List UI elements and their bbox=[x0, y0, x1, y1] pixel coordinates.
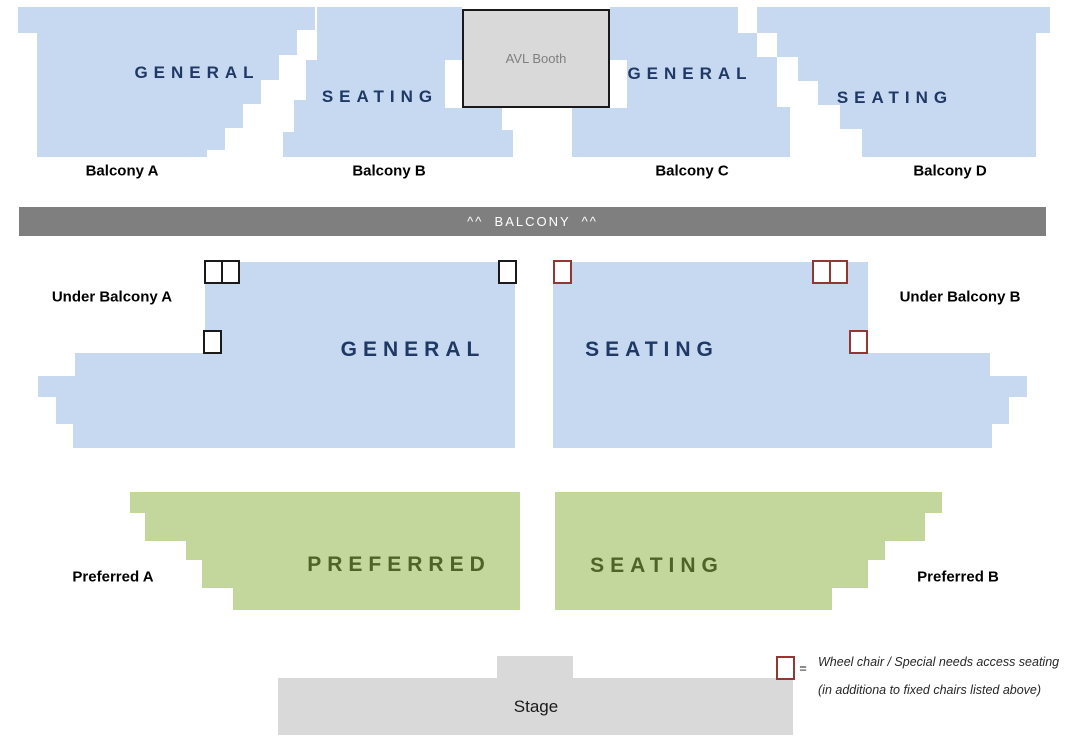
general-seating-heading-right: SEATING bbox=[585, 338, 719, 362]
preferred-a-label: Preferred A bbox=[72, 569, 153, 586]
balcony-divider-bar: ^^ BALCONY ^^ bbox=[19, 207, 1046, 236]
preferred-a-shape bbox=[130, 492, 520, 610]
legend-line-1: Wheel chair / Special needs access seati… bbox=[818, 655, 1059, 669]
balcony-c-label: Balcony C bbox=[655, 163, 728, 180]
balcony-d-label: Balcony D bbox=[913, 163, 986, 180]
under-balcony-b-label: Under Balcony B bbox=[900, 289, 1021, 306]
preferred-b-shape bbox=[555, 492, 942, 610]
wheelchair-seat-square bbox=[498, 260, 517, 284]
balcony-a-label: Balcony A bbox=[86, 163, 159, 180]
wheelchair-seat-square bbox=[553, 260, 572, 284]
preferred-b-label: Preferred B bbox=[917, 569, 999, 586]
wheelchair-seat-square bbox=[221, 260, 240, 284]
under-balcony-a-label: Under Balcony A bbox=[52, 289, 172, 306]
balcony-a-heading: GENERAL bbox=[134, 63, 259, 83]
seating-shapes-layer bbox=[0, 0, 1065, 740]
stage-shape bbox=[278, 656, 793, 735]
avl-booth: AVL Booth bbox=[462, 9, 610, 108]
seating-chart: GENERAL SEATING GENERAL SEATING AVL Boot… bbox=[0, 0, 1065, 740]
avl-booth-label: AVL Booth bbox=[506, 51, 567, 66]
wheelchair-seat-square bbox=[203, 330, 222, 354]
preferred-heading-left: PREFERRED bbox=[307, 553, 491, 577]
legend-line-2: (in additiona to fixed chairs listed abo… bbox=[818, 683, 1041, 697]
balcony-d-heading: SEATING bbox=[837, 88, 953, 108]
balcony-b-heading: SEATING bbox=[322, 87, 438, 107]
stage-label: Stage bbox=[514, 697, 558, 717]
balcony-divider-label: ^^ BALCONY ^^ bbox=[467, 214, 598, 229]
balcony-b-label: Balcony B bbox=[352, 163, 425, 180]
wheelchair-seat-square bbox=[849, 330, 868, 354]
balcony-d-shape bbox=[757, 7, 1050, 157]
preferred-heading-right: SEATING bbox=[590, 554, 724, 578]
general-seating-heading-left: GENERAL bbox=[341, 338, 486, 362]
wheelchair-seat-square bbox=[829, 260, 848, 284]
balcony-c-heading: GENERAL bbox=[627, 64, 752, 84]
wheelchair-legend-square bbox=[776, 656, 795, 680]
legend-equals-sign: = bbox=[799, 661, 807, 676]
